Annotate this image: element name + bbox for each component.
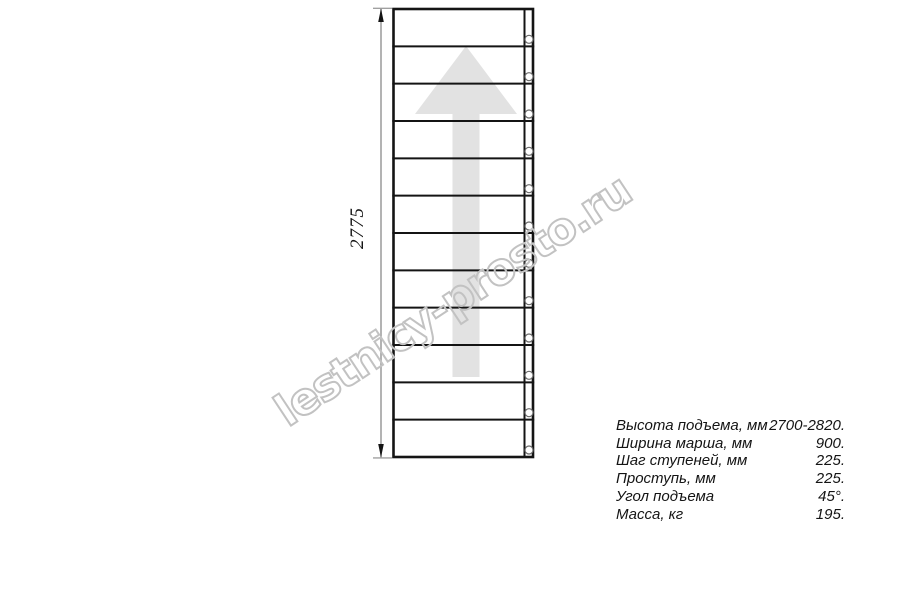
fastener-hole (525, 409, 533, 417)
spec-row-step: Шаг ступеней, мм 225. (616, 452, 845, 470)
specs-table: Высота подъема, мм 2700-2820. Ширина мар… (616, 417, 845, 523)
spec-value: 195. (816, 506, 845, 524)
spec-value: 2700-2820. (769, 417, 845, 435)
fastener-hole (525, 222, 533, 230)
direction-up-arrow (415, 46, 517, 377)
spec-label: Высота подъема, мм (616, 417, 768, 435)
spec-row-width: Ширина марша, мм 900. (616, 435, 845, 453)
spec-label: Ширина марша, мм (616, 435, 752, 453)
spec-label: Шаг ступеней, мм (616, 452, 747, 470)
fastener-hole (525, 446, 533, 454)
spec-label: Угол подъема (616, 488, 714, 506)
spec-value: 45°. (818, 488, 845, 506)
spec-value: 225. (816, 452, 845, 470)
fastener-hole (525, 35, 533, 43)
dimension-value-label: 2775 (347, 207, 369, 249)
fastener-hole (525, 185, 533, 193)
stair-plan-page: 2775 lestnicy-prosto.ru Высота подъема, … (0, 0, 900, 600)
fastener-hole (525, 259, 533, 267)
spec-row-tread: Проступь, мм 225. (616, 470, 845, 488)
dimension-arrow-bottom (378, 444, 384, 458)
fastener-hole (525, 334, 533, 342)
fastener-hole (525, 371, 533, 379)
spec-label: Проступь, мм (616, 470, 716, 488)
spec-value: 225. (816, 470, 845, 488)
spec-row-height: Высота подъема, мм 2700-2820. (616, 417, 845, 435)
fastener-hole (525, 147, 533, 155)
spec-label: Масса, кг (616, 506, 683, 524)
spec-row-angle: Угол подъема 45°. (616, 488, 845, 506)
dimension-arrow-top (378, 9, 384, 23)
spec-value: 900. (816, 435, 845, 453)
fastener-hole (525, 297, 533, 305)
fastener-hole (525, 73, 533, 81)
fastener-hole (525, 110, 533, 118)
spec-row-mass: Масса, кг 195. (616, 506, 845, 524)
